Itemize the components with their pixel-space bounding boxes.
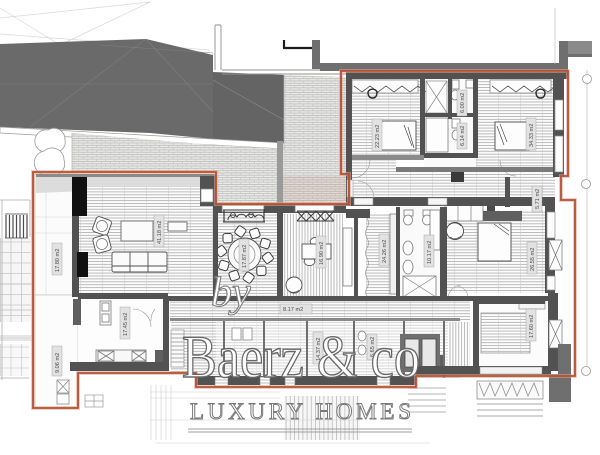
svg-text:8.17 m2: 8.17 m2 <box>283 307 303 313</box>
svg-text:17.80 m2: 17.80 m2 <box>55 249 61 272</box>
svg-text:Baerz & co: Baerz & co <box>182 324 420 390</box>
svg-text:9.06 m2: 9.06 m2 <box>55 353 61 373</box>
svg-text:22.23 m2: 22.23 m2 <box>375 125 381 148</box>
svg-text:6.00 m2: 6.00 m2 <box>460 93 466 113</box>
svg-text:17.60 m2: 17.60 m2 <box>529 315 535 338</box>
svg-text:6.14 m2: 6.14 m2 <box>460 126 466 146</box>
svg-text:17.87 m2: 17.87 m2 <box>242 245 248 268</box>
svg-text:by: by <box>211 270 251 316</box>
svg-text:17.45 m2: 17.45 m2 <box>123 313 129 336</box>
svg-text:16.90 m2: 16.90 m2 <box>319 242 325 265</box>
svg-text:24.26 m2: 24.26 m2 <box>382 240 388 263</box>
svg-text:5.71 m2: 5.71 m2 <box>535 189 541 209</box>
svg-text:26.55 m2: 26.55 m2 <box>530 248 536 271</box>
svg-text:10.17 m2: 10.17 m2 <box>427 241 433 264</box>
svg-text:41.18 m2: 41.18 m2 <box>157 221 163 244</box>
svg-text:34.33 m2: 34.33 m2 <box>529 124 535 147</box>
